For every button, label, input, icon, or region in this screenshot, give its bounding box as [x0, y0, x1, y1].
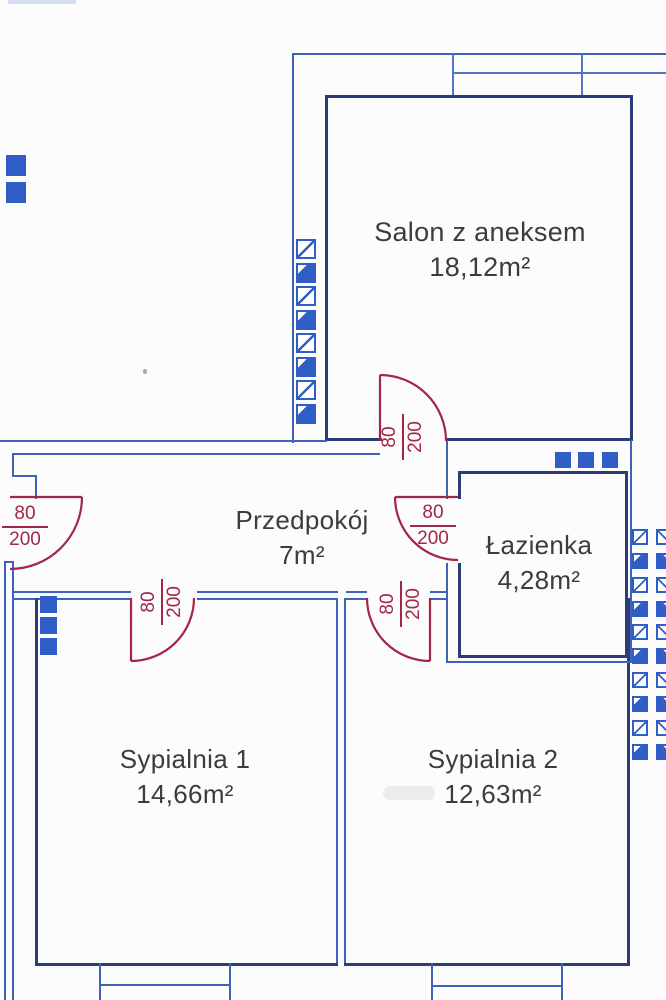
door-swings-layer — [0, 0, 666, 1000]
scan-speck — [143, 369, 147, 374]
room-area: 4,28m² — [458, 563, 620, 598]
door-height: 200 — [9, 530, 41, 550]
room-area: 14,66m² — [60, 777, 310, 812]
door-width: 80 — [422, 503, 443, 523]
door-height: 200 — [406, 421, 426, 453]
room-name: Salon z aneksem — [330, 215, 630, 250]
bathroom-label: Łazienka 4,28m² — [458, 528, 620, 598]
bedroom1-door-size-label: 80 200 — [134, 578, 190, 626]
room-area: 7m² — [192, 538, 412, 573]
salon-label: Salon z aneksem 18,12m² — [330, 215, 630, 285]
room-area: 18,12m² — [330, 250, 630, 285]
bedroom2-label: Sypialnia 2 12,63m² — [368, 742, 618, 812]
fraction-bar — [402, 414, 404, 460]
bathroom-door-size-label: 80 200 — [405, 503, 461, 549]
door-width: 80 — [139, 591, 159, 612]
door-width: 80 — [380, 426, 400, 447]
floor-plan: 80 200 80 200 80 200 80 200 80 200 Salon… — [0, 0, 666, 1000]
room-name: Sypialnia 2 — [368, 742, 618, 777]
door-height: 200 — [165, 586, 185, 618]
room-name: Sypialnia 1 — [60, 742, 310, 777]
fraction-bar — [161, 579, 163, 625]
entrance-door-size-label: 80 200 — [0, 504, 50, 550]
fraction-bar — [410, 525, 456, 527]
hallway-label: Przedpokój 7m² — [192, 503, 412, 573]
scan-smudge — [383, 786, 435, 800]
fraction-bar — [2, 526, 48, 528]
door-width: 80 — [378, 593, 398, 614]
room-name: Przedpokój — [192, 503, 412, 538]
salon-door-size-label: 80 200 — [375, 413, 431, 461]
door-width: 80 — [14, 504, 35, 524]
bedroom1-label: Sypialnia 1 14,66m² — [60, 742, 310, 812]
door-height: 200 — [417, 529, 449, 549]
fraction-bar — [400, 581, 402, 627]
bedroom2-door-size-label: 80 200 — [373, 580, 429, 628]
door-height: 200 — [404, 588, 424, 620]
scan-smudge — [8, 0, 76, 4]
room-name: Łazienka — [458, 528, 620, 563]
